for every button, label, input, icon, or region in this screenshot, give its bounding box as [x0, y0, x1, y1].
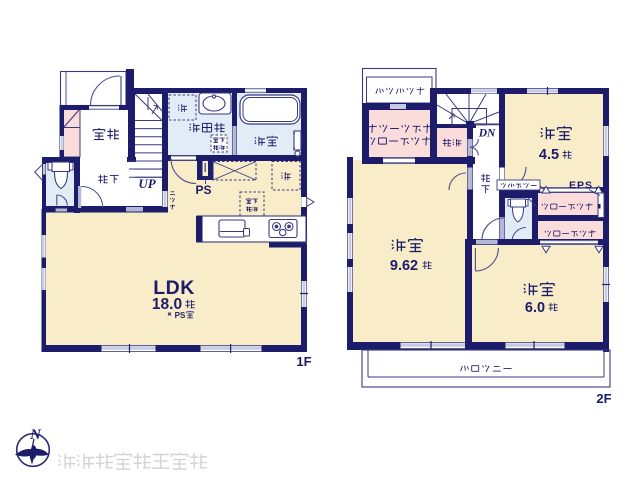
svg-text:DN: DN [478, 128, 496, 140]
svg-text:9.62: 9.62 [390, 258, 418, 274]
svg-text:UP: UP [138, 176, 156, 191]
svg-text:2F: 2F [596, 391, 611, 406]
svg-text:4.5: 4.5 [539, 147, 559, 163]
svg-text:N: N [29, 427, 42, 443]
svg-text:EPS: EPS [569, 180, 593, 192]
svg-text:PS: PS [175, 311, 186, 320]
svg-text:PS: PS [195, 183, 211, 197]
svg-text:1F: 1F [296, 354, 311, 369]
svg-text:6.0: 6.0 [525, 300, 545, 316]
